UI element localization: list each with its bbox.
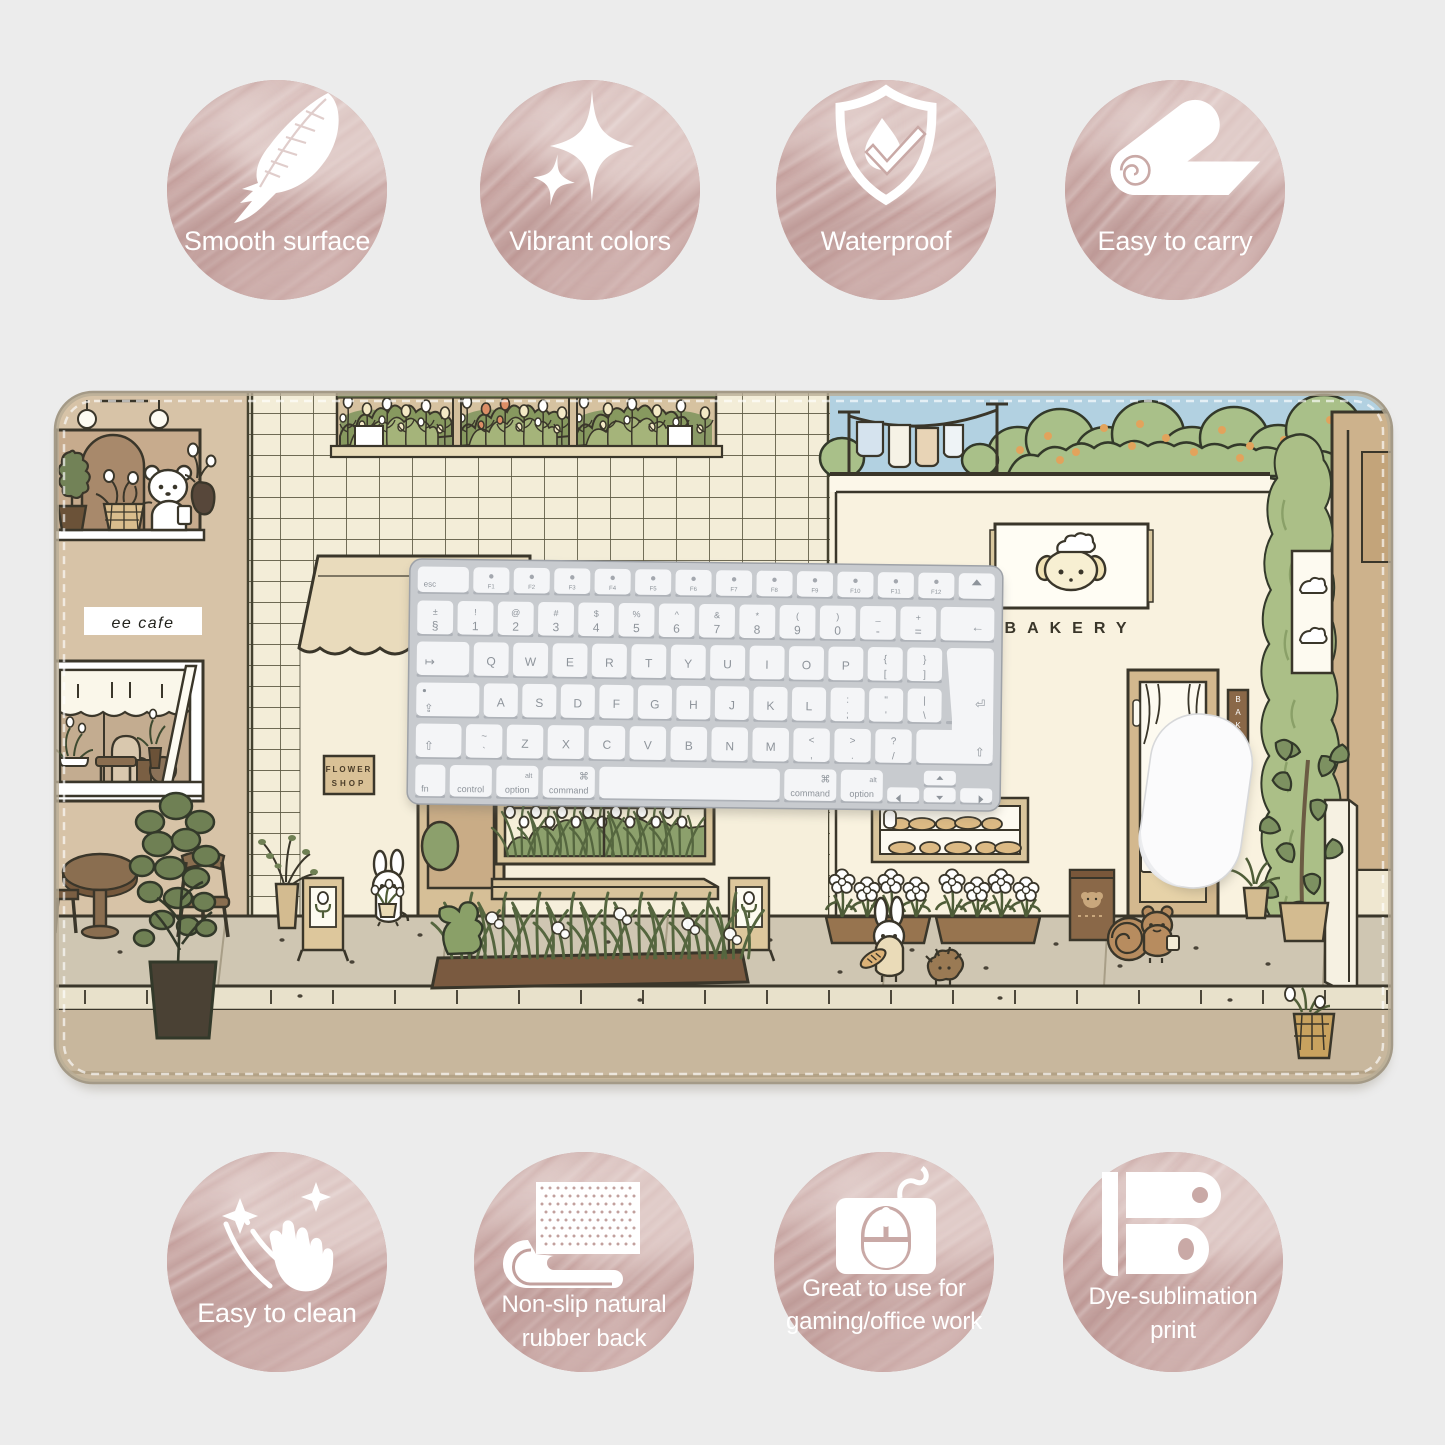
svg-text:B: B bbox=[1235, 695, 1240, 704]
svg-text:>: > bbox=[850, 736, 856, 747]
svg-text:2: 2 bbox=[512, 620, 519, 634]
svg-text:F8: F8 bbox=[771, 588, 779, 594]
svg-text:Dye-sublimation: Dye-sublimation bbox=[1088, 1283, 1257, 1310]
svg-text:Y: Y bbox=[684, 657, 692, 671]
svg-text:+: + bbox=[916, 613, 921, 623]
svg-text:U: U bbox=[723, 657, 732, 671]
svg-text:8: 8 bbox=[754, 623, 761, 637]
svg-text:FLOWER: FLOWER bbox=[326, 765, 373, 774]
svg-text:P: P bbox=[842, 659, 850, 673]
svg-text:': ' bbox=[885, 710, 887, 721]
svg-text:|: | bbox=[923, 696, 926, 707]
svg-text:K: K bbox=[766, 699, 774, 713]
svg-text:&: & bbox=[714, 610, 720, 620]
svg-text:9: 9 bbox=[794, 623, 801, 637]
svg-text:ee cafe: ee cafe bbox=[112, 615, 175, 632]
svg-text:X: X bbox=[562, 737, 570, 751]
svg-text:W: W bbox=[525, 655, 537, 669]
svg-text:): ) bbox=[836, 612, 839, 622]
svg-text:Non-slip natural: Non-slip natural bbox=[502, 1291, 667, 1318]
svg-text:F1: F1 bbox=[488, 584, 496, 590]
svg-text:H: H bbox=[689, 698, 698, 712]
svg-text:Smooth surface: Smooth surface bbox=[184, 226, 370, 256]
svg-text:4: 4 bbox=[593, 621, 600, 635]
svg-text:Q: Q bbox=[486, 654, 496, 668]
svg-text:I: I bbox=[765, 658, 769, 672]
svg-text:;: ; bbox=[846, 710, 849, 721]
svg-text:SHOP: SHOP bbox=[332, 779, 367, 788]
svg-text::: : bbox=[846, 695, 849, 706]
svg-text:alt: alt bbox=[525, 773, 533, 780]
svg-text:BAKERY: BAKERY bbox=[1005, 620, 1138, 637]
svg-text:⌘: ⌘ bbox=[579, 771, 589, 782]
svg-text:!: ! bbox=[474, 607, 477, 617]
svg-text:fn: fn bbox=[421, 784, 429, 794]
svg-text:rubber back: rubber back bbox=[522, 1325, 648, 1352]
svg-text:V: V bbox=[644, 738, 652, 752]
svg-text:E: E bbox=[566, 655, 574, 669]
svg-text:B: B bbox=[685, 739, 693, 753]
svg-text:⇧: ⇧ bbox=[975, 745, 985, 759]
svg-text:O: O bbox=[802, 658, 812, 672]
svg-text:↦: ↦ bbox=[425, 655, 435, 669]
svg-text:D: D bbox=[573, 696, 582, 710]
svg-text:?: ? bbox=[891, 736, 897, 747]
svg-text:⇪: ⇪ bbox=[424, 703, 433, 715]
svg-text:#: # bbox=[553, 608, 558, 618]
svg-text:S: S bbox=[535, 696, 543, 710]
svg-text:5: 5 bbox=[633, 621, 640, 635]
svg-text:=: = bbox=[915, 625, 922, 639]
svg-text:3: 3 bbox=[552, 620, 559, 634]
svg-text:\: \ bbox=[923, 711, 926, 722]
svg-text:Waterproof: Waterproof bbox=[821, 226, 952, 256]
svg-text:⏎: ⏎ bbox=[975, 697, 985, 711]
svg-text:control: control bbox=[457, 784, 484, 794]
svg-text:,: , bbox=[810, 750, 813, 761]
svg-text:~: ~ bbox=[481, 731, 487, 742]
svg-text:§: § bbox=[432, 619, 439, 633]
svg-text:6: 6 bbox=[673, 622, 680, 636]
svg-text:`: ` bbox=[482, 745, 485, 757]
svg-text:Vibrant colors: Vibrant colors bbox=[509, 226, 671, 256]
svg-text:print: print bbox=[1150, 1317, 1196, 1344]
svg-text:F6: F6 bbox=[690, 587, 698, 593]
svg-text:.: . bbox=[851, 751, 854, 762]
svg-text:±: ± bbox=[433, 607, 438, 617]
svg-text:F: F bbox=[613, 697, 621, 711]
svg-text:F3: F3 bbox=[569, 585, 577, 591]
svg-text:command: command bbox=[549, 785, 589, 795]
svg-text:F2: F2 bbox=[528, 585, 536, 591]
svg-text:⇧: ⇧ bbox=[424, 739, 434, 753]
svg-text:Easy to clean: Easy to clean bbox=[197, 1298, 357, 1328]
svg-text:<: < bbox=[809, 735, 815, 746]
svg-text:": " bbox=[884, 695, 888, 706]
svg-text:option: option bbox=[849, 789, 874, 799]
svg-text:F9: F9 bbox=[811, 588, 819, 594]
svg-text:M: M bbox=[766, 740, 776, 754]
svg-text:N: N bbox=[725, 739, 734, 753]
svg-text:*: * bbox=[755, 611, 759, 621]
svg-text:F10: F10 bbox=[850, 589, 861, 595]
svg-text:@: @ bbox=[511, 608, 520, 618]
svg-text:esc: esc bbox=[424, 580, 437, 589]
svg-text:gaming/office work: gaming/office work bbox=[786, 1308, 983, 1335]
svg-text:C: C bbox=[602, 738, 611, 752]
svg-text:←: ← bbox=[971, 619, 984, 634]
svg-text:option: option bbox=[505, 785, 530, 795]
svg-text:F5: F5 bbox=[650, 586, 658, 592]
svg-text:⌘: ⌘ bbox=[820, 774, 830, 785]
svg-text:A: A bbox=[1235, 708, 1241, 717]
svg-text:-: - bbox=[876, 624, 880, 638]
svg-text:F12: F12 bbox=[931, 590, 942, 596]
svg-text:0: 0 bbox=[834, 624, 841, 638]
svg-text:7: 7 bbox=[713, 622, 720, 636]
svg-text:Z: Z bbox=[521, 737, 529, 751]
svg-text:/: / bbox=[892, 751, 895, 762]
svg-text:Great to use for: Great to use for bbox=[802, 1275, 966, 1302]
svg-text:F4: F4 bbox=[609, 586, 617, 592]
svg-text:1: 1 bbox=[472, 619, 479, 633]
svg-text:F11: F11 bbox=[891, 589, 902, 595]
svg-text:A: A bbox=[497, 695, 505, 709]
svg-text:L: L bbox=[806, 699, 813, 713]
svg-text:J: J bbox=[729, 698, 735, 712]
svg-text:%: % bbox=[632, 609, 640, 619]
svg-text:$: $ bbox=[594, 609, 599, 619]
svg-text:G: G bbox=[650, 697, 660, 711]
svg-text:alt: alt bbox=[869, 777, 877, 784]
svg-text:R: R bbox=[605, 656, 614, 670]
svg-text:command: command bbox=[790, 788, 830, 798]
svg-text:F7: F7 bbox=[730, 587, 738, 593]
svg-text:[: [ bbox=[884, 669, 887, 680]
svg-text:]: ] bbox=[923, 670, 926, 681]
svg-text:(: ( bbox=[796, 611, 799, 621]
svg-text:Easy to carry: Easy to carry bbox=[1098, 226, 1254, 256]
svg-text:T: T bbox=[645, 656, 653, 670]
